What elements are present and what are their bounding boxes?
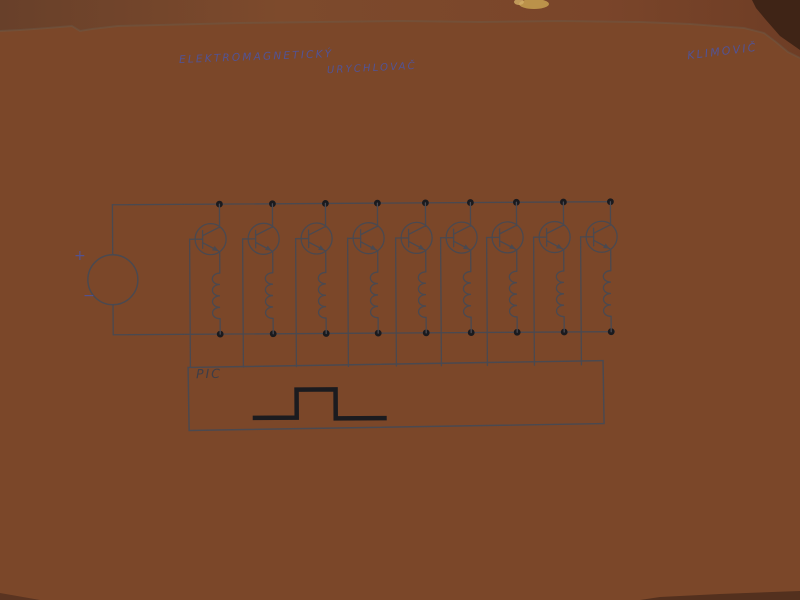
stage-5-coil	[418, 272, 426, 318]
stage-3-coil	[318, 272, 326, 318]
pulse-waveform	[253, 389, 387, 419]
stage-7-coil	[509, 271, 517, 317]
stage-6-base-drive-line	[441, 238, 442, 366]
bottom-right-sliver	[640, 591, 800, 600]
pic-controller-box	[188, 361, 604, 431]
stage-1-collector-stroke	[203, 228, 219, 236]
stage-5-base-drive-line	[396, 238, 397, 366]
paper-top-edge-shadow	[0, 21, 800, 58]
stage-1-base-drive-line	[190, 239, 191, 367]
stage-6-collector-stroke	[454, 226, 470, 234]
table-edge	[0, 0, 800, 70]
stage-8-coil	[556, 271, 564, 317]
pic-controller-label: PIC	[196, 366, 222, 381]
stage-2-coil	[265, 273, 273, 319]
stage-9-coil	[603, 271, 611, 317]
stage-7-base-drive-line	[487, 237, 488, 365]
photo-of-hand-drawn-schematic: ELEKTROMAGNETICKÝ URYCHLOVAČ KLIMOVIČ + …	[0, 0, 800, 600]
stage-7-collector-stroke	[500, 226, 516, 234]
stage-8-base-drive-line	[534, 237, 535, 365]
stage-9-base-drive-line	[581, 237, 582, 365]
wood-surface	[0, 0, 800, 58]
source-plus-label: +	[74, 248, 86, 264]
top-rail	[112, 202, 610, 205]
stage-1-coil	[212, 273, 220, 319]
bottom-left-sliver	[0, 593, 40, 600]
stage-3-collector-stroke	[309, 227, 325, 235]
stage-5-collector-stroke	[409, 226, 425, 234]
stage-3-base-drive-line	[296, 239, 297, 367]
stage-9-collector-stroke	[594, 225, 610, 233]
bottom-rail	[113, 332, 614, 335]
table-bottom-slivers	[0, 560, 800, 600]
circuit-diagram	[0, 0, 800, 600]
stage-8-collector-stroke	[547, 226, 563, 234]
stage-4-base-drive-line	[348, 238, 349, 366]
stage-2-base-drive-line	[243, 239, 244, 367]
dc-source-symbol	[88, 255, 138, 305]
stage-4-coil	[370, 272, 378, 318]
stage-6-coil	[463, 272, 471, 318]
source-minus-label: −	[83, 288, 95, 304]
stage-2-collector-stroke	[256, 227, 272, 235]
stage-4-collector-stroke	[361, 227, 377, 235]
